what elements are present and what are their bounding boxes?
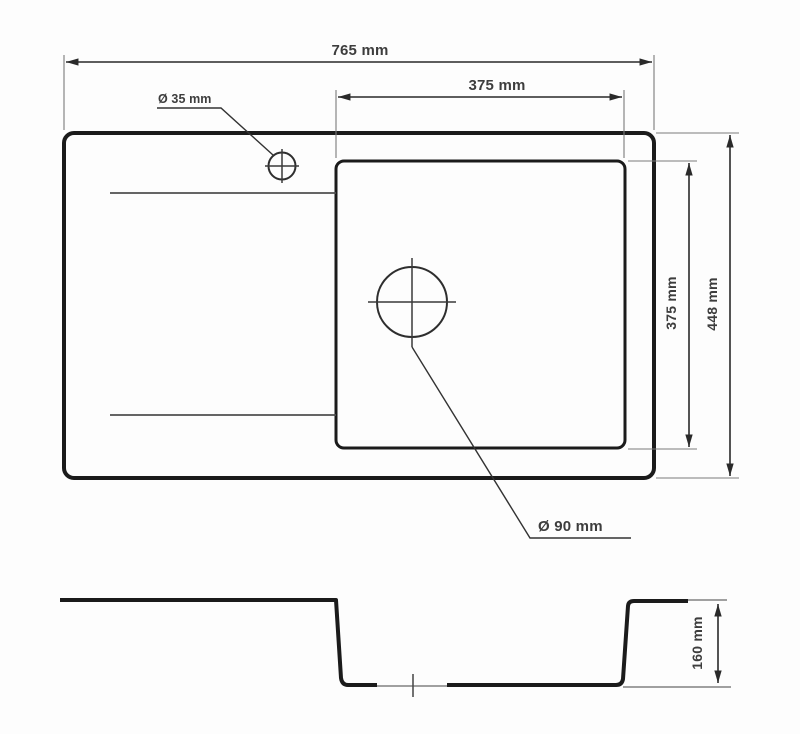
drain-hole-leader-line <box>412 347 631 538</box>
drain-hole-symbol <box>368 258 456 347</box>
bowl-outline <box>336 161 625 448</box>
drawing-canvas: Ø 35 mm Ø 90 mm 765 mm 375 mm 375 mm <box>0 0 800 734</box>
dimension-bowl-depth: 375 mm <box>628 161 697 449</box>
sink-outline <box>64 133 654 478</box>
section-profile-left <box>60 600 377 685</box>
sink-section-view: 160 mm <box>60 600 731 697</box>
faucet-hole-diameter-label: Ø 35 mm <box>158 92 212 106</box>
overall-width-label: 765 mm <box>331 42 388 59</box>
sink-technical-drawing: Ø 35 mm Ø 90 mm 765 mm 375 mm 375 mm <box>0 0 800 734</box>
bowl-width-label: 375 mm <box>468 77 525 94</box>
faucet-hole-symbol <box>265 149 299 183</box>
bowl-height-label: 160 mm <box>689 616 705 669</box>
bowl-depth-label: 375 mm <box>663 276 679 329</box>
sink-top-view: Ø 35 mm Ø 90 mm 765 mm 375 mm 375 mm <box>64 42 739 538</box>
section-profile-right <box>447 601 688 685</box>
dimension-bowl-width: 375 mm <box>336 77 624 158</box>
dimension-overall-width: 765 mm <box>64 42 654 130</box>
callout-drain-hole: Ø 90 mm <box>412 347 631 538</box>
dimension-bowl-height: 160 mm <box>689 604 718 683</box>
overall-depth-label: 448 mm <box>704 277 720 330</box>
callout-faucet-hole: Ø 35 mm <box>157 92 273 155</box>
drain-hole-diameter-label: Ø 90 mm <box>538 518 603 535</box>
